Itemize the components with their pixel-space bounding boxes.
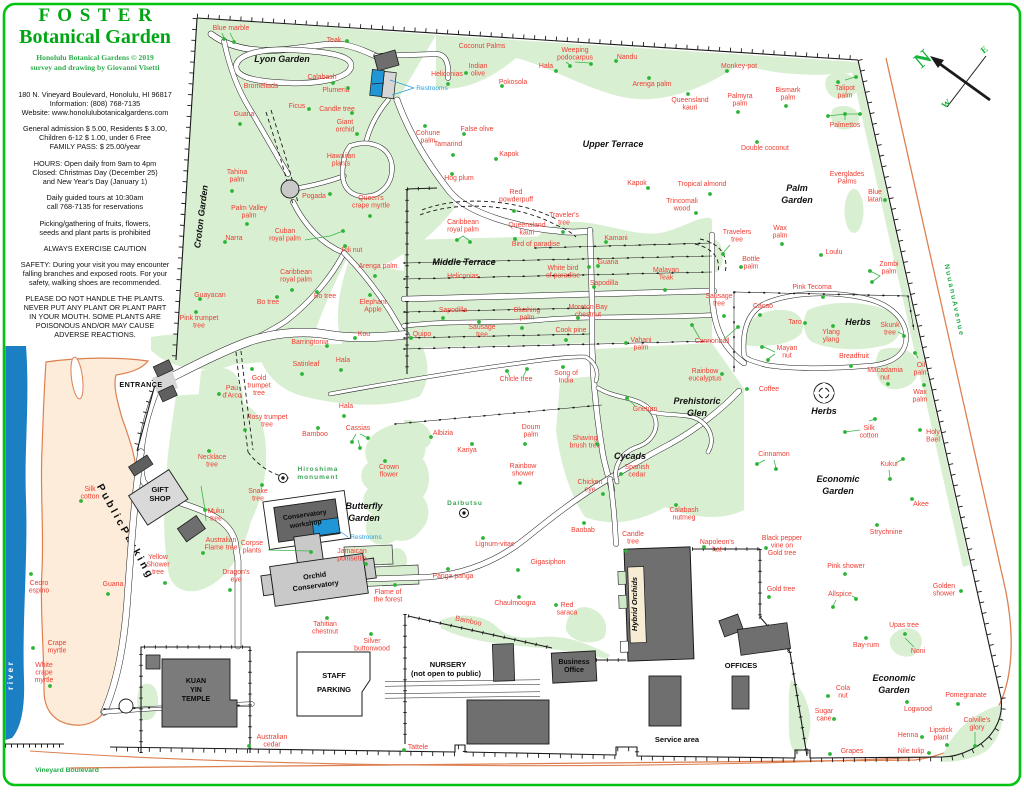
svg-text:Vineyard Boulevard: Vineyard Boulevard bbox=[35, 767, 99, 774]
svg-text:Sapodilla: Sapodilla bbox=[439, 307, 468, 314]
svg-text:Blue marble: Blue marble bbox=[213, 25, 250, 32]
svg-text:Wax: Wax bbox=[913, 389, 927, 396]
svg-text:Hala: Hala bbox=[539, 63, 553, 70]
svg-text:Hybrid Orchids: Hybrid Orchids bbox=[630, 577, 639, 631]
svg-text:Traveler's: Traveler's bbox=[549, 212, 579, 219]
svg-text:royal palm: royal palm bbox=[447, 227, 479, 234]
svg-text:Strychnine: Strychnine bbox=[870, 529, 903, 536]
svg-text:falling branches and exposed r: falling branches and exposed roots. For … bbox=[23, 269, 168, 278]
svg-text:Hawaiian: Hawaiian bbox=[327, 153, 356, 160]
svg-text:Snake: Snake bbox=[248, 488, 268, 495]
svg-text:Cola: Cola bbox=[836, 685, 850, 692]
svg-text:Calabash: Calabash bbox=[307, 74, 336, 81]
svg-text:palm: palm bbox=[230, 177, 245, 184]
svg-text:Shower: Shower bbox=[146, 562, 170, 569]
svg-text:royal palm: royal palm bbox=[280, 277, 312, 284]
svg-text:Office: Office bbox=[564, 667, 584, 674]
svg-text:nut: nut bbox=[838, 693, 848, 700]
svg-text:Everglades: Everglades bbox=[830, 171, 865, 178]
svg-text:Narra: Narra bbox=[225, 235, 242, 242]
svg-text:White: White bbox=[35, 662, 53, 669]
svg-text:Kukui: Kukui bbox=[880, 461, 898, 468]
svg-text:NURSERY: NURSERY bbox=[430, 660, 466, 669]
svg-text:Macadamia: Macadamia bbox=[867, 367, 903, 374]
svg-text:kauri: kauri bbox=[520, 230, 535, 237]
svg-text:tree: tree bbox=[558, 220, 570, 227]
svg-text:IN YOUR MOUTH. SOME PLANTS AR: IN YOUR MOUTH. SOME PLANTS ARE bbox=[29, 312, 161, 321]
svg-text:Elephant: Elephant bbox=[359, 299, 386, 306]
svg-text:Talipot: Talipot bbox=[835, 85, 855, 92]
svg-text:palm: palm bbox=[520, 315, 535, 322]
svg-text:Crown: Crown bbox=[379, 464, 399, 471]
svg-text:nut: nut bbox=[880, 375, 890, 382]
svg-text:Cedro: Cedro bbox=[30, 580, 49, 587]
svg-text:r i v e r: r i v e r bbox=[5, 661, 15, 690]
svg-text:Bottle: Bottle bbox=[742, 256, 760, 263]
svg-text:Blushing: Blushing bbox=[514, 307, 541, 314]
svg-text:Red: Red bbox=[561, 602, 574, 609]
svg-text:flower: flower bbox=[380, 472, 399, 479]
svg-text:tree: tree bbox=[627, 539, 639, 546]
svg-text:Bird of paradise: Bird of paradise bbox=[512, 241, 560, 248]
svg-text:TEMPLE: TEMPLE bbox=[182, 696, 211, 703]
svg-text:Gigasiphon: Gigasiphon bbox=[531, 559, 566, 566]
svg-text:Cannonball: Cannonball bbox=[695, 338, 730, 345]
svg-text:Palmettos: Palmettos bbox=[830, 122, 861, 129]
svg-text:Heliconias: Heliconias bbox=[447, 273, 479, 280]
svg-text:Service area: Service area bbox=[655, 735, 700, 744]
svg-text:Sausage: Sausage bbox=[705, 293, 732, 300]
svg-text:Black pepper: Black pepper bbox=[762, 535, 803, 542]
svg-text:Trincomali: Trincomali bbox=[666, 198, 698, 205]
svg-text:Monkey-pot: Monkey-pot bbox=[721, 63, 757, 70]
svg-text:(not open to public): (not open to public) bbox=[411, 669, 481, 678]
svg-text:PARKING: PARKING bbox=[317, 685, 351, 694]
svg-text:Bromeliads: Bromeliads bbox=[244, 83, 279, 90]
svg-text:OFFICES: OFFICES bbox=[725, 661, 758, 670]
svg-text:Restrooms: Restrooms bbox=[350, 534, 382, 541]
svg-text:Garden: Garden bbox=[348, 513, 380, 523]
svg-text:Apple: Apple bbox=[364, 307, 382, 314]
svg-text:Gold: Gold bbox=[252, 375, 267, 382]
svg-text:Spanish: Spanish bbox=[625, 464, 650, 471]
svg-text:Bismark: Bismark bbox=[776, 87, 801, 94]
svg-text:tree: tree bbox=[193, 323, 205, 330]
svg-text:Garden: Garden bbox=[878, 685, 910, 695]
svg-text:Upas tree: Upas tree bbox=[889, 622, 919, 629]
svg-text:Prehistoric: Prehistoric bbox=[673, 396, 720, 406]
svg-text:GIFT: GIFT bbox=[151, 485, 168, 494]
svg-text:Albizia: Albizia bbox=[433, 430, 453, 437]
svg-text:Daily guided tours at 10:30am: Daily guided tours at 10:30am bbox=[47, 193, 144, 202]
svg-text:royal palm: royal palm bbox=[269, 236, 301, 243]
svg-text:Zombi: Zombi bbox=[879, 261, 899, 268]
svg-text:trumpet: trumpet bbox=[247, 383, 270, 390]
svg-text:palm: palm bbox=[744, 264, 759, 271]
svg-text:Logwood: Logwood bbox=[904, 706, 932, 713]
svg-text:seeds and plant parts is prohi: seeds and plant parts is prohibited bbox=[39, 228, 150, 237]
svg-text:eucalyptus: eucalyptus bbox=[689, 376, 722, 383]
svg-text:Cycads: Cycads bbox=[614, 451, 646, 461]
svg-text:Cinnamon: Cinnamon bbox=[758, 451, 790, 458]
svg-text:palm: palm bbox=[882, 269, 897, 276]
svg-text:Necklace: Necklace bbox=[198, 454, 227, 461]
svg-text:POISONOUS AND/OR MAY CAUSE: POISONOUS AND/OR MAY CAUSE bbox=[36, 321, 155, 330]
svg-text:Palmyra: Palmyra bbox=[727, 93, 752, 100]
svg-text:plants: plants bbox=[243, 548, 262, 555]
svg-text:Economic: Economic bbox=[872, 673, 915, 683]
svg-text:shower: shower bbox=[933, 591, 956, 598]
svg-text:and New Year's Day (January 1): and New Year's Day (January 1) bbox=[43, 177, 147, 186]
svg-text:Caribbean: Caribbean bbox=[447, 219, 479, 226]
svg-text:Kariya: Kariya bbox=[457, 447, 477, 454]
svg-text:Song of: Song of bbox=[554, 370, 578, 377]
svg-text:Lignum-vitae: Lignum-vitae bbox=[475, 541, 515, 548]
svg-text:Hiroshima: Hiroshima bbox=[298, 466, 339, 473]
svg-text:Allspice: Allspice bbox=[828, 591, 852, 598]
svg-text:Dragon's: Dragon's bbox=[222, 569, 250, 576]
svg-text:Cuban: Cuban bbox=[275, 228, 295, 235]
svg-text:Daibutsu: Daibutsu bbox=[447, 500, 483, 507]
svg-text:myrtle: myrtle bbox=[35, 677, 54, 684]
svg-text:Satinleaf: Satinleaf bbox=[293, 361, 320, 368]
svg-text:NEVER PUT ANY PLANT OR PLANT P: NEVER PUT ANY PLANT OR PLANT PART bbox=[24, 303, 167, 312]
svg-text:Economic: Economic bbox=[816, 474, 859, 484]
svg-text:False olive: False olive bbox=[461, 126, 494, 133]
svg-text:Panga panga: Panga panga bbox=[432, 573, 473, 580]
svg-text:Ficus: Ficus bbox=[289, 103, 306, 110]
svg-text:Golden: Golden bbox=[933, 583, 955, 590]
svg-text:STAFF: STAFF bbox=[322, 671, 346, 680]
svg-text:palm: palm bbox=[913, 397, 928, 404]
svg-text:Sugar: Sugar bbox=[815, 708, 834, 715]
svg-text:Crape: Crape bbox=[48, 640, 67, 647]
svg-text:Chicle tree: Chicle tree bbox=[500, 376, 533, 383]
svg-text:podocarpus: podocarpus bbox=[557, 55, 594, 62]
svg-text:Muku: Muku bbox=[208, 508, 225, 515]
svg-text:KUAN: KUAN bbox=[186, 678, 206, 685]
svg-text:Akee: Akee bbox=[913, 501, 929, 508]
svg-text:Corpse: Corpse bbox=[241, 540, 263, 547]
svg-text:Lyon Garden: Lyon Garden bbox=[254, 54, 310, 64]
svg-text:Taro: Taro bbox=[788, 319, 802, 326]
svg-text:Bamboo: Bamboo bbox=[302, 431, 328, 438]
svg-text:Garden: Garden bbox=[822, 486, 854, 496]
svg-text:Pink trumpet: Pink trumpet bbox=[180, 315, 219, 322]
svg-text:Cohune: Cohune bbox=[416, 130, 440, 137]
svg-text:Loulu: Loulu bbox=[826, 249, 843, 256]
svg-text:tree: tree bbox=[206, 462, 218, 469]
svg-text:Garden: Garden bbox=[781, 195, 813, 205]
svg-text:Pau: Pau bbox=[226, 385, 238, 392]
svg-text:Nile tulip: Nile tulip bbox=[898, 748, 925, 755]
svg-text:Restrooms: Restrooms bbox=[416, 85, 448, 92]
svg-text:plant: plant bbox=[934, 735, 949, 742]
svg-text:Business: Business bbox=[558, 659, 589, 666]
svg-text:Queensland: Queensland bbox=[671, 97, 708, 104]
svg-text:vine on: vine on bbox=[771, 543, 793, 550]
svg-text:d'Arco: d'Arco bbox=[222, 393, 241, 400]
svg-text:Palms: Palms bbox=[837, 179, 857, 186]
svg-text:tree: tree bbox=[884, 330, 896, 337]
svg-text:Kou: Kou bbox=[358, 331, 370, 338]
svg-text:Middle Terrace: Middle Terrace bbox=[432, 257, 495, 267]
svg-text:Tamarind: Tamarind bbox=[434, 141, 463, 148]
svg-text:Teak: Teak bbox=[327, 37, 342, 44]
svg-text:Lipstick: Lipstick bbox=[930, 727, 954, 734]
svg-text:PLEASE DO NOT HANDLE THE PLANT: PLEASE DO NOT HANDLE THE PLANTS. bbox=[25, 294, 164, 303]
svg-text:palm: palm bbox=[524, 432, 539, 439]
svg-text:Vahani: Vahani bbox=[631, 337, 652, 344]
svg-text:Chicken: Chicken bbox=[578, 479, 603, 486]
svg-text:Ylang: Ylang bbox=[822, 329, 840, 336]
svg-text:palm: palm bbox=[242, 213, 257, 220]
svg-text:tree: tree bbox=[476, 332, 488, 339]
svg-text:tree: tree bbox=[210, 516, 222, 523]
svg-text:Closed: Christmas Day (Decembe: Closed: Christmas Day (December 25) bbox=[32, 168, 157, 177]
svg-text:Henna: Henna bbox=[898, 732, 918, 739]
svg-text:tree: tree bbox=[713, 301, 725, 308]
svg-text:Hog plum: Hog plum bbox=[444, 175, 474, 182]
svg-text:Coffee: Coffee bbox=[759, 386, 779, 393]
svg-text:General admission $ 5.00, Resi: General admission $ 5.00, Residents $ 3.… bbox=[23, 124, 167, 133]
svg-text:Honolulu Botanical Gardens © 2: Honolulu Botanical Gardens © 2019 bbox=[36, 53, 154, 62]
svg-text:Guana: Guana bbox=[598, 259, 619, 266]
svg-text:Tahitian: Tahitian bbox=[313, 621, 337, 628]
svg-text:ADVERSE REACTIONS.: ADVERSE REACTIONS. bbox=[54, 330, 136, 339]
svg-text:palm: palm bbox=[634, 345, 649, 352]
svg-text:Bay-rum: Bay-rum bbox=[853, 642, 879, 649]
svg-text:YIN: YIN bbox=[190, 687, 202, 694]
svg-text:Calabash: Calabash bbox=[669, 507, 698, 514]
svg-text:Double coconut: Double coconut bbox=[741, 145, 789, 152]
svg-text:nut: nut bbox=[782, 353, 792, 360]
svg-text:chestnut: chestnut bbox=[312, 629, 338, 636]
svg-text:shower: shower bbox=[512, 471, 535, 478]
svg-text:Herbs: Herbs bbox=[811, 406, 837, 416]
svg-text:Weeping: Weeping bbox=[561, 47, 588, 54]
svg-text:Cassias: Cassias bbox=[346, 425, 371, 432]
svg-text:espino: espino bbox=[29, 588, 49, 595]
svg-text:Caribbean: Caribbean bbox=[280, 269, 312, 276]
svg-text:White bird: White bird bbox=[547, 265, 578, 272]
svg-text:Oil: Oil bbox=[917, 362, 926, 369]
svg-text:Jamaican: Jamaican bbox=[337, 548, 367, 555]
svg-text:palm: palm bbox=[838, 93, 853, 100]
svg-text:palm: palm bbox=[914, 370, 929, 377]
svg-text:Pink Tecoma: Pink Tecoma bbox=[792, 284, 831, 291]
svg-text:Palm: Palm bbox=[786, 183, 808, 193]
svg-text:Malayan: Malayan bbox=[653, 267, 679, 274]
svg-text:Holy: Holy bbox=[926, 429, 940, 436]
svg-text:Bael: Bael bbox=[926, 437, 940, 444]
svg-text:plants: plants bbox=[332, 161, 351, 168]
svg-text:Breadfruit: Breadfruit bbox=[839, 353, 869, 360]
svg-text:Picking/gathering of fruits, f: Picking/gathering of fruits, flowers, bbox=[39, 219, 150, 228]
svg-text:Pink shower: Pink shower bbox=[827, 563, 865, 570]
svg-text:Red: Red bbox=[510, 189, 523, 196]
svg-text:cane: cane bbox=[817, 716, 832, 723]
svg-text:Queensland: Queensland bbox=[508, 222, 545, 229]
svg-text:Arenga palm: Arenga palm bbox=[632, 81, 671, 88]
svg-text:Rainbow: Rainbow bbox=[692, 368, 719, 375]
svg-text:saraca: saraca bbox=[557, 610, 578, 617]
svg-text:Gold tree: Gold tree bbox=[767, 586, 796, 593]
svg-text:kauri: kauri bbox=[683, 105, 698, 112]
svg-text:Silk: Silk bbox=[863, 425, 875, 432]
svg-text:Blue: Blue bbox=[868, 189, 882, 196]
svg-text:India: India bbox=[559, 378, 574, 385]
svg-text:Flame tree: Flame tree bbox=[205, 545, 238, 552]
svg-text:Colville's: Colville's bbox=[964, 717, 992, 724]
svg-text:palm: palm bbox=[781, 95, 796, 102]
svg-text:Pomegranate: Pomegranate bbox=[945, 692, 987, 699]
svg-text:nutmeg: nutmeg bbox=[673, 515, 696, 522]
svg-text:Glen: Glen bbox=[687, 408, 708, 418]
svg-text:Chaulmoogra: Chaulmoogra bbox=[494, 600, 536, 607]
svg-text:olive: olive bbox=[471, 71, 485, 78]
svg-text:powderpuff: powderpuff bbox=[499, 197, 533, 204]
svg-text:Coconut Palms: Coconut Palms bbox=[459, 43, 506, 50]
svg-text:F O S T E R: F O S T E R bbox=[39, 5, 154, 26]
svg-text:Pili nut: Pili nut bbox=[342, 247, 363, 254]
svg-text:Information: (808) 768-7135: Information: (808) 768-7135 bbox=[50, 99, 140, 108]
svg-text:Napoleon's: Napoleon's bbox=[700, 539, 735, 546]
svg-text:HOURS: Open daily from 9am to: HOURS: Open daily from 9am to 4pm bbox=[34, 159, 156, 168]
svg-text:Hala: Hala bbox=[339, 403, 353, 410]
svg-text:Website: www.honolulubotanical: Website: www.honolulubotanicalgardens.co… bbox=[22, 108, 169, 117]
svg-text:Wax: Wax bbox=[773, 225, 787, 232]
svg-text:Arenga palm: Arenga palm bbox=[358, 263, 397, 270]
svg-text:Palm Valley: Palm Valley bbox=[231, 205, 267, 212]
svg-text:Quipo: Quipo bbox=[413, 331, 432, 338]
svg-text:Plumeria: Plumeria bbox=[322, 87, 349, 94]
svg-text:palm: palm bbox=[773, 233, 788, 240]
svg-text:eye: eye bbox=[230, 577, 241, 584]
svg-text:Mayan: Mayan bbox=[777, 345, 798, 352]
svg-text:Gold tree: Gold tree bbox=[768, 550, 797, 557]
svg-text:Moreton Bay: Moreton Bay bbox=[568, 304, 608, 311]
svg-text:poinsettia: poinsettia bbox=[337, 556, 367, 563]
svg-text:Candle tree: Candle tree bbox=[319, 106, 355, 113]
svg-text:Australian: Australian bbox=[257, 734, 288, 741]
svg-text:Barringtonia: Barringtonia bbox=[291, 339, 328, 346]
svg-text:SAFETY: During your visit you: SAFETY: During your visit you may encoun… bbox=[21, 260, 170, 269]
svg-text:Heliconias: Heliconias bbox=[431, 71, 463, 78]
svg-text:Shaving: Shaving bbox=[573, 435, 598, 442]
svg-text:monument: monument bbox=[297, 474, 338, 481]
svg-text:call 768-7135 for reservations: call 768-7135 for reservations bbox=[47, 202, 143, 211]
svg-text:cotton: cotton bbox=[860, 433, 879, 440]
svg-text:the forest: the forest bbox=[374, 597, 403, 604]
svg-text:Australian: Australian bbox=[206, 537, 237, 544]
svg-text:cedar: cedar bbox=[263, 742, 281, 749]
svg-text:Sausage: Sausage bbox=[468, 324, 495, 331]
svg-text:safety, walking shoes are reco: safety, walking shoes are recommended. bbox=[29, 278, 161, 287]
svg-text:Silk: Silk bbox=[84, 486, 96, 493]
svg-text:Candle: Candle bbox=[622, 531, 644, 538]
svg-text:Bo tree: Bo tree bbox=[257, 299, 279, 306]
svg-text:Cacao: Cacao bbox=[753, 303, 773, 310]
svg-text:Tahina: Tahina bbox=[227, 169, 247, 176]
svg-text:Children 6-12 $ 1.00, under 6: Children 6-12 $ 1.00, under 6 Free bbox=[39, 133, 151, 142]
svg-text:SHOP: SHOP bbox=[149, 494, 170, 503]
svg-text:Rainbow: Rainbow bbox=[510, 463, 537, 470]
svg-text:Kamani: Kamani bbox=[604, 235, 628, 242]
svg-text:glory: glory bbox=[970, 725, 985, 732]
svg-text:Indian: Indian bbox=[469, 63, 488, 70]
svg-text:buttonwood: buttonwood bbox=[354, 646, 390, 653]
svg-text:Teak: Teak bbox=[659, 275, 674, 282]
svg-text:hat: hat bbox=[712, 547, 722, 554]
svg-text:tree: tree bbox=[252, 496, 264, 503]
svg-text:Grapes: Grapes bbox=[841, 748, 864, 755]
svg-text:crape myrtle: crape myrtle bbox=[352, 203, 390, 210]
svg-text:orchid: orchid bbox=[336, 127, 355, 134]
svg-text:crape: crape bbox=[35, 670, 52, 677]
svg-text:Travelers: Travelers bbox=[723, 229, 752, 236]
svg-text:Nandu: Nandu bbox=[617, 54, 637, 61]
svg-text:Guana: Guana bbox=[234, 111, 255, 118]
svg-text:eye: eye bbox=[584, 487, 595, 494]
svg-text:Hala: Hala bbox=[336, 357, 350, 364]
svg-text:of paradise: of paradise bbox=[546, 273, 580, 280]
svg-text:tree: tree bbox=[261, 422, 273, 429]
svg-text:Skunk: Skunk bbox=[880, 322, 900, 329]
svg-text:Tropical almond: Tropical almond bbox=[678, 181, 727, 188]
svg-text:Guana: Guana bbox=[103, 581, 124, 588]
svg-text:survey and drawing by Giovanni: survey and drawing by Giovanni Visetti bbox=[31, 63, 160, 72]
svg-text:FAMILY PASS: $ 25.00/year: FAMILY PASS: $ 25.00/year bbox=[50, 142, 141, 151]
svg-text:ENTRANCE: ENTRANCE bbox=[119, 380, 162, 389]
svg-text:Queen's: Queen's bbox=[358, 195, 384, 202]
svg-text:Kapok: Kapok bbox=[499, 151, 519, 158]
svg-text:ylang: ylang bbox=[823, 337, 840, 344]
svg-text:latan: latan bbox=[868, 197, 883, 204]
svg-text:Botanical Garden: Botanical Garden bbox=[19, 26, 171, 48]
svg-text:Flame of: Flame of bbox=[375, 589, 402, 596]
svg-text:Upper Terrace: Upper Terrace bbox=[583, 139, 644, 149]
svg-text:Giant: Giant bbox=[337, 119, 354, 126]
svg-text:tree: tree bbox=[152, 569, 164, 576]
svg-text:Silver: Silver bbox=[363, 638, 381, 645]
svg-text:Herbs: Herbs bbox=[845, 317, 871, 327]
svg-text:palm: palm bbox=[733, 101, 748, 108]
svg-text:Gnetum: Gnetum bbox=[633, 406, 658, 413]
svg-text:ALWAYS EXERCISE CAUTION: ALWAYS EXERCISE CAUTION bbox=[44, 244, 147, 253]
svg-text:Kapok: Kapok bbox=[627, 180, 647, 187]
svg-text:Baobab: Baobab bbox=[571, 527, 595, 534]
svg-text:Rosy trumpet: Rosy trumpet bbox=[247, 414, 288, 421]
svg-text:cotton: cotton bbox=[81, 494, 100, 501]
svg-text:wood: wood bbox=[673, 206, 691, 213]
svg-text:tree: tree bbox=[253, 390, 265, 397]
svg-text:tree: tree bbox=[731, 237, 743, 244]
svg-text:Noni: Noni bbox=[911, 648, 926, 655]
svg-text:Doum: Doum bbox=[522, 424, 541, 431]
svg-text:Cook pine: Cook pine bbox=[555, 327, 586, 334]
svg-text:myrtle: myrtle bbox=[48, 648, 67, 655]
svg-text:Tattele: Tattele bbox=[408, 744, 428, 751]
svg-text:cedar: cedar bbox=[628, 472, 646, 479]
svg-text:Yellow: Yellow bbox=[148, 554, 168, 561]
svg-text:Pogada: Pogada bbox=[302, 193, 326, 200]
svg-text:Bo tree: Bo tree bbox=[314, 293, 336, 300]
svg-text:Butterfly: Butterfly bbox=[345, 501, 383, 511]
svg-text:180 N. Vineyard Boulevard, Hon: 180 N. Vineyard Boulevard, Honolulu, HI … bbox=[18, 90, 172, 99]
